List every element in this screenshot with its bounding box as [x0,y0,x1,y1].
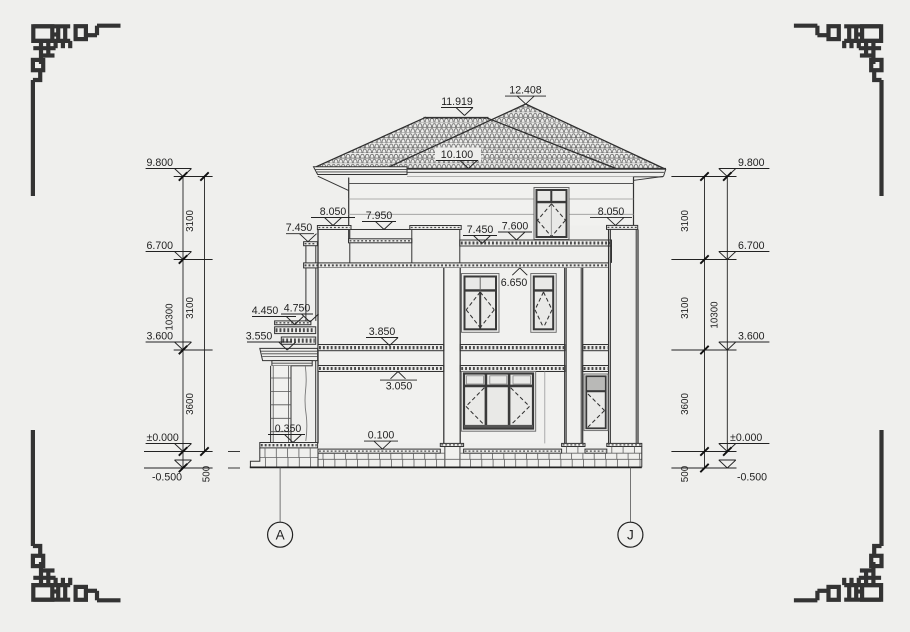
svg-text:9.800: 9.800 [738,157,765,169]
svg-text:12.408: 12.408 [509,85,542,97]
svg-text:3600: 3600 [185,393,196,415]
svg-text:3.600: 3.600 [738,331,765,343]
svg-text:7.450: 7.450 [286,222,313,234]
svg-text:4.450: 4.450 [252,305,279,317]
svg-text:7.950: 7.950 [366,210,393,222]
svg-text:4.750: 4.750 [284,303,311,315]
svg-text:A: A [276,527,285,542]
svg-text:10300: 10300 [710,301,721,329]
svg-text:0.100: 0.100 [368,430,395,442]
svg-text:8.050: 8.050 [598,206,625,218]
svg-text:6.650: 6.650 [501,277,528,289]
svg-text:6.700: 6.700 [147,240,174,252]
svg-text:500: 500 [202,465,213,482]
svg-text:10.100: 10.100 [441,149,474,161]
svg-text:3.600: 3.600 [147,331,174,343]
svg-text:3100: 3100 [680,210,691,232]
svg-text:500: 500 [680,465,691,482]
svg-text:8.050: 8.050 [320,206,347,218]
svg-text:3100: 3100 [185,297,196,319]
svg-text:±0.000: ±0.000 [730,432,762,444]
svg-text:9.800: 9.800 [147,157,174,169]
svg-text:±0.000: ±0.000 [147,432,179,444]
svg-text:-0.500: -0.500 [737,472,767,484]
svg-text:3.050: 3.050 [386,381,413,393]
svg-text:0.350: 0.350 [275,423,302,435]
svg-text:7.600: 7.600 [502,221,529,233]
svg-text:6.700: 6.700 [738,240,765,252]
svg-text:-0.500: -0.500 [152,472,182,484]
svg-text:7.450: 7.450 [467,224,494,236]
svg-text:J: J [627,527,634,542]
svg-text:3100: 3100 [185,210,196,232]
svg-text:3600: 3600 [680,393,691,415]
svg-text:3.850: 3.850 [369,326,396,338]
svg-text:3.550: 3.550 [246,331,273,343]
svg-text:10300: 10300 [165,303,176,331]
svg-text:3100: 3100 [680,297,691,319]
svg-text:11.919: 11.919 [441,96,473,108]
